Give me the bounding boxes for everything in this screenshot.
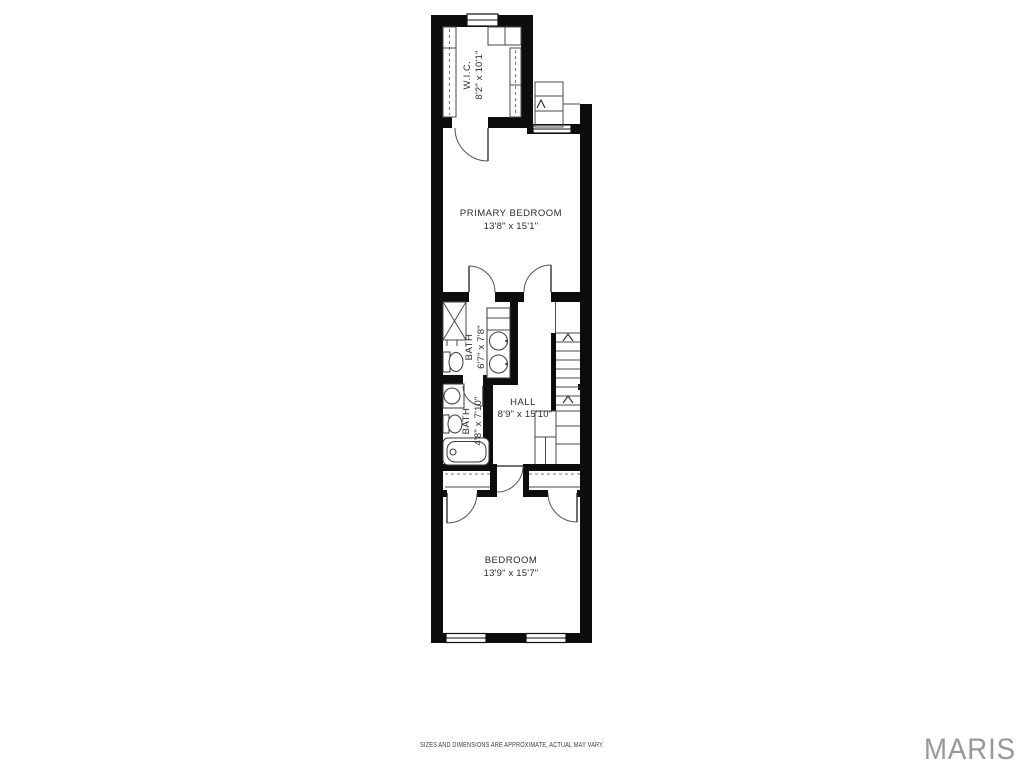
primary-hall-door bbox=[524, 265, 551, 292]
bath1-double-vanity bbox=[487, 308, 510, 378]
wic-label: W.I.C. bbox=[462, 61, 473, 90]
bedroom-dims: 13'9" x 15'7" bbox=[484, 568, 539, 579]
bath2-toilet bbox=[443, 415, 462, 433]
wic-dims: 8'2" x 10'1" bbox=[474, 50, 485, 99]
floor-plan-page: W.I.C. 8'2" x 10'1" PRIMARY BEDROOM 13'8… bbox=[0, 0, 1024, 768]
closet-right bbox=[529, 474, 580, 487]
wic-window bbox=[467, 14, 498, 26]
primary-bedroom-dims: 13'8" x 15'1" bbox=[484, 221, 539, 232]
bath2-vanity bbox=[443, 384, 464, 408]
disclaimer-text: SIZES AND DIMENSIONS ARE APPROXIMATE, AC… bbox=[420, 742, 604, 749]
bath2-label: BATH bbox=[461, 408, 472, 435]
hall-bedroom-door bbox=[497, 466, 523, 492]
stair-up-arrow-lower bbox=[563, 396, 573, 403]
floor-plan-svg: W.I.C. 8'2" x 10'1" PRIMARY BEDROOM 13'8… bbox=[0, 0, 1024, 768]
staircase bbox=[535, 302, 580, 464]
bath2-dims: 4'8" x 7'10" bbox=[473, 396, 484, 445]
hall-label: HALL bbox=[510, 397, 536, 408]
bedroom-window-right bbox=[526, 634, 566, 643]
stair-up-arrow-top bbox=[537, 100, 545, 108]
primary-bedroom-label: PRIMARY BEDROOM bbox=[460, 208, 562, 219]
bath1-label: BATH bbox=[464, 334, 475, 361]
wic-door bbox=[455, 128, 488, 161]
hall-dims: 8'9" x 15'10" bbox=[498, 409, 553, 420]
primary-bedroom-window bbox=[533, 125, 571, 133]
bedroom-label: BEDROOM bbox=[485, 555, 538, 566]
bath1-shower bbox=[443, 302, 466, 346]
closet-left-door bbox=[447, 493, 477, 523]
bedroom-window-left bbox=[446, 634, 486, 643]
closet-left bbox=[445, 474, 490, 487]
primary-bath-door bbox=[469, 266, 495, 292]
stair-up-arrow-upper bbox=[563, 334, 573, 341]
closet-right-door bbox=[548, 493, 577, 522]
maris-logo: MARIS bbox=[924, 733, 1016, 766]
stair-top-landing bbox=[535, 82, 580, 127]
bath1-toilet bbox=[443, 352, 463, 372]
bath1-dims: 6'7" x 7'8" bbox=[476, 325, 487, 369]
